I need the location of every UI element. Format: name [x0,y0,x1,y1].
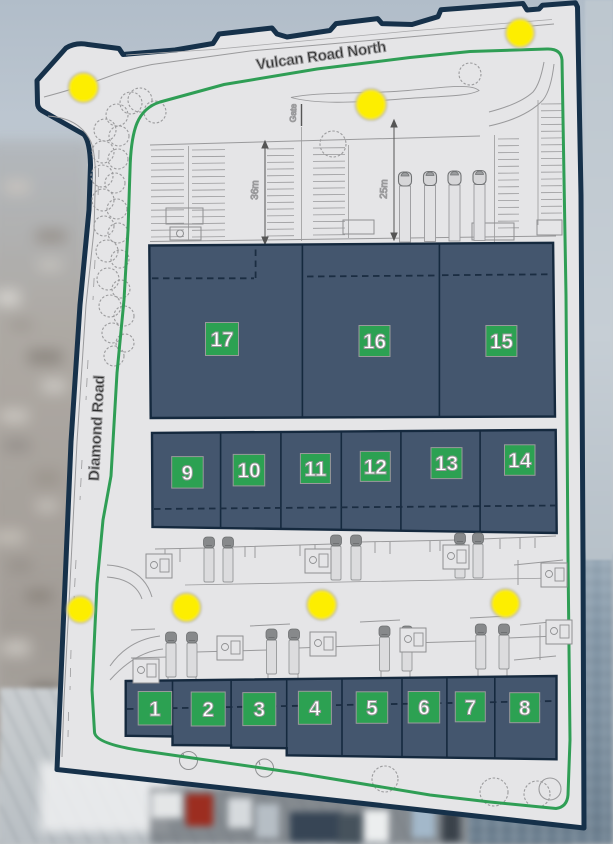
svg-text:13: 13 [435,453,458,476]
svg-text:36m: 36m [250,180,262,200]
svg-text:11: 11 [304,458,327,481]
svg-text:1: 1 [149,698,161,721]
svg-text:9: 9 [182,462,194,485]
svg-text:17: 17 [210,329,233,352]
svg-text:16: 16 [363,331,386,354]
svg-text:5: 5 [366,697,378,720]
svg-text:25m: 25m [379,179,391,199]
svg-text:14: 14 [508,450,532,473]
svg-text:12: 12 [364,456,387,479]
svg-text:10: 10 [237,460,260,483]
svg-text:2: 2 [202,699,214,722]
svg-text:7: 7 [464,696,476,719]
svg-text:4: 4 [309,697,321,720]
svg-text:3: 3 [253,699,265,722]
svg-text:6: 6 [418,697,430,720]
svg-text:8: 8 [519,697,531,720]
svg-text:15: 15 [490,331,514,354]
svg-text:Gate: Gate [288,103,299,122]
